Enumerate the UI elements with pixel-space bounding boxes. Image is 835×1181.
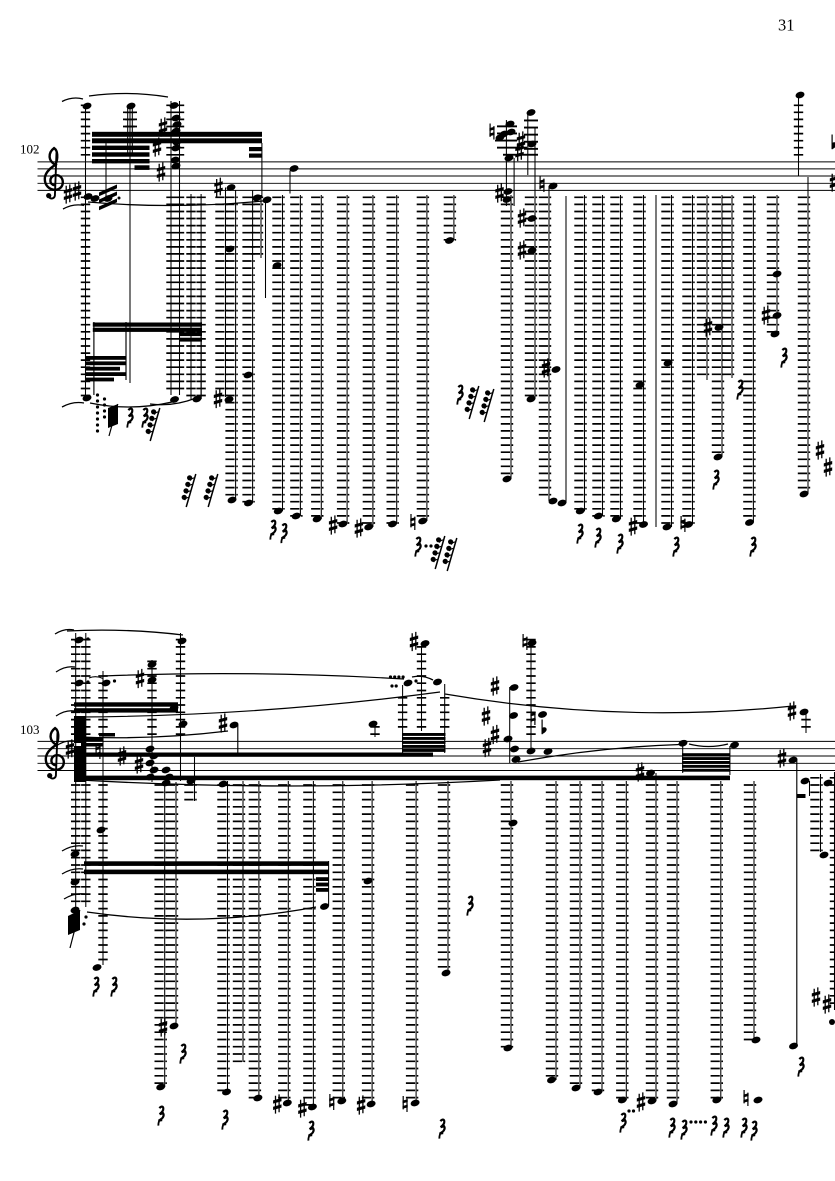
svg-text:31: 31: [778, 16, 795, 35]
svg-text:102: 102: [20, 142, 40, 157]
svg-text:103: 103: [20, 722, 40, 737]
